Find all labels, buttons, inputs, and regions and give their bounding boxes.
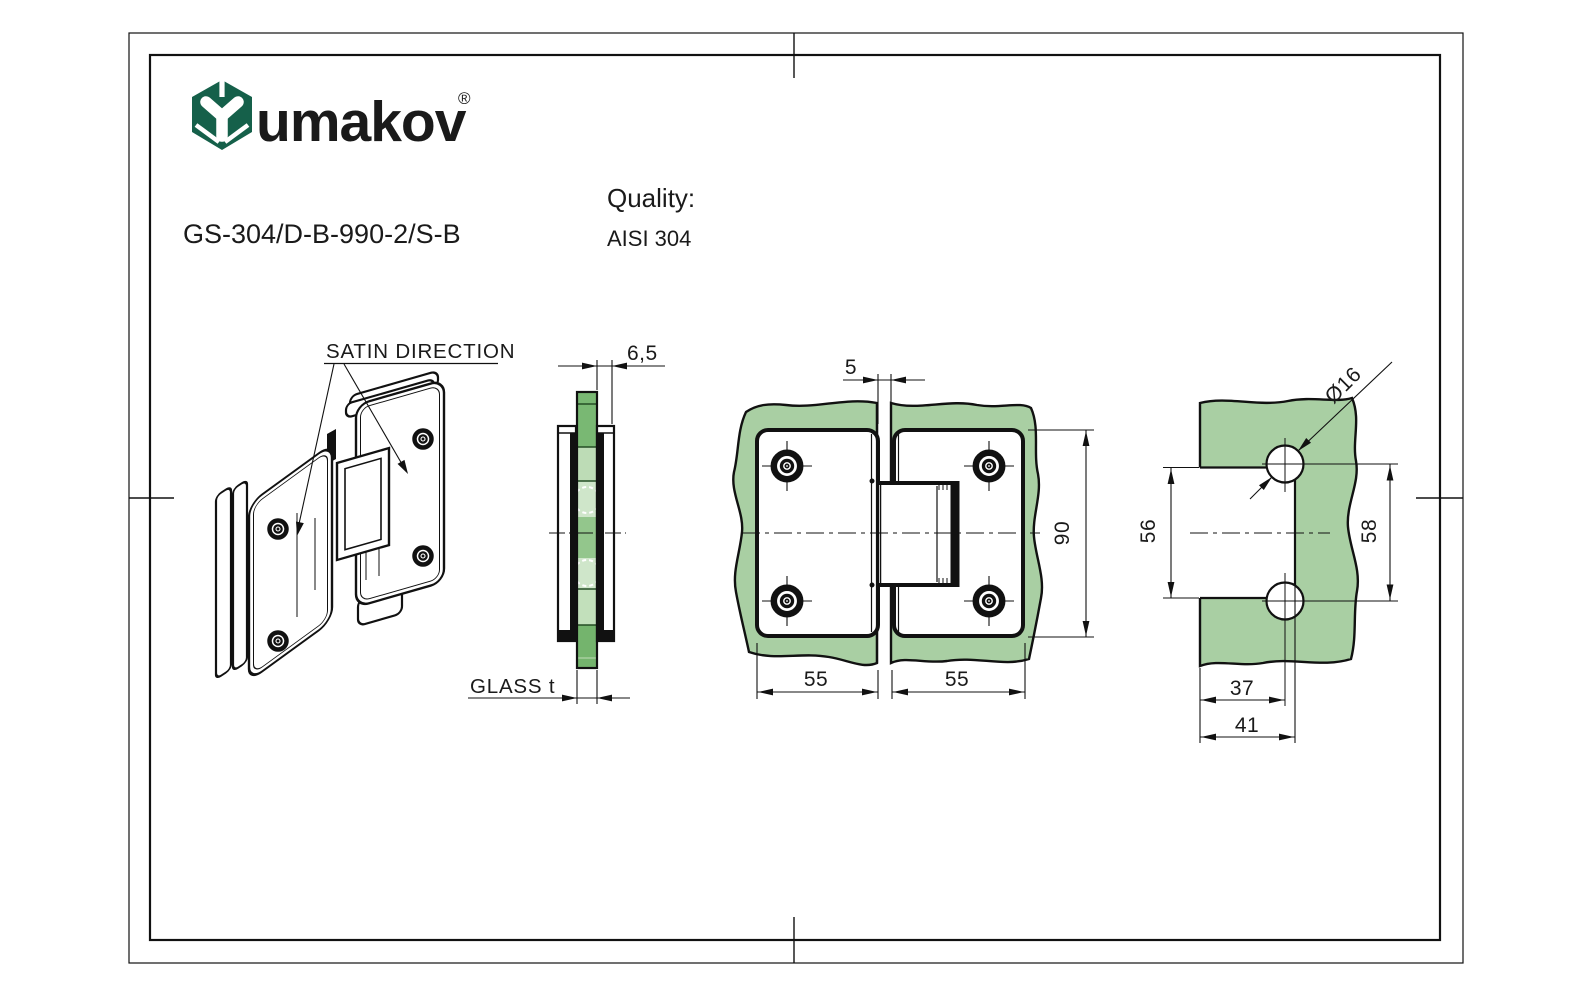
dim-cutout-height-value: 56 xyxy=(1137,519,1160,543)
drawing-canvas: umakov ® GS-304/D-B-990-2/S-B Quality: A… xyxy=(0,0,1590,997)
screw-icon xyxy=(270,521,287,538)
logo: umakov ® xyxy=(192,79,471,154)
screw-icon xyxy=(415,431,432,448)
side-view xyxy=(468,360,665,704)
logo-wordmark: umakov xyxy=(256,90,467,154)
dim-gap-value: 5 xyxy=(845,356,857,379)
satin-direction-label: SATIN DIRECTION xyxy=(326,340,515,363)
dim-plate-offset-value: 6,5 xyxy=(627,342,658,365)
glass-thickness-label: GLASS t xyxy=(470,675,555,698)
dim-cutout-width-value: 41 xyxy=(1235,714,1259,737)
quality-value: AISI 304 xyxy=(607,226,691,251)
iso-knuckle xyxy=(337,448,389,560)
dim-6-5 xyxy=(558,360,665,424)
logo-hexagon-icon xyxy=(192,79,252,150)
quality-label: Quality: xyxy=(607,183,695,213)
iso-left-plate xyxy=(249,444,332,681)
dim-height-value: 90 xyxy=(1051,521,1074,545)
screw-icon xyxy=(270,633,287,650)
front-view xyxy=(733,374,1094,699)
product-code: GS-304/D-B-990-2/S-B xyxy=(183,219,461,249)
dim-left-width-value: 55 xyxy=(804,668,828,691)
drawing-sheet: umakov ® GS-304/D-B-990-2/S-B Quality: A… xyxy=(0,0,1590,997)
dim-right-width-value: 55 xyxy=(945,668,969,691)
dim-hole-center-offset-value: 37 xyxy=(1230,677,1254,700)
dim-hole-centers-value: 58 xyxy=(1358,519,1381,543)
isometric-view xyxy=(216,364,498,682)
hole-template-view xyxy=(1163,362,1398,743)
logo-registered-mark: ® xyxy=(458,89,471,108)
screw-icon xyxy=(415,548,432,565)
